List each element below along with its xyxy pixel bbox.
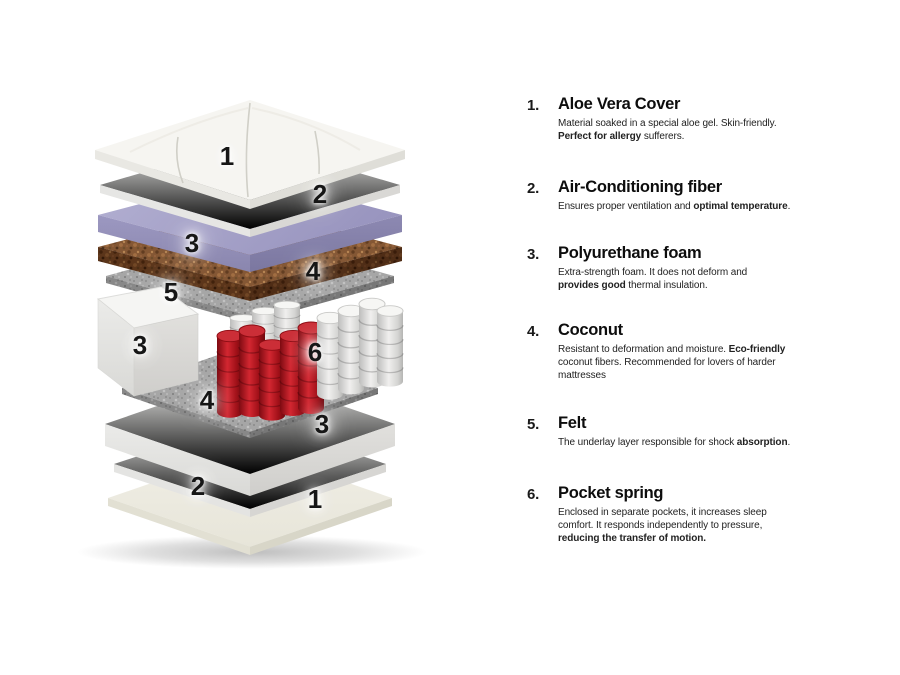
legend-item-title: Pocket spring xyxy=(558,484,767,502)
legend-item-title: Polyurethane foam xyxy=(558,244,747,262)
layer-label-2-top: 2 xyxy=(313,181,327,207)
legend-item-description: The underlay layer responsible for shock… xyxy=(558,436,790,449)
legend-item-air-conditioning-fiber: 2. Air-Conditioning fiber Ensures proper… xyxy=(512,178,790,213)
legend-item-number: 3. xyxy=(527,244,558,263)
layer-label-5: 5 xyxy=(164,279,178,305)
legend-item-title: Aloe Vera Cover xyxy=(558,95,777,113)
layer-label-2-bottom: 2 xyxy=(191,473,205,499)
foam-block xyxy=(98,287,198,396)
legend-item-number: 5. xyxy=(527,414,558,433)
layer-label-1-bottom: 1 xyxy=(308,486,322,512)
layer-label-6: 6 xyxy=(308,339,322,365)
mattress-layers-infographic: 1 2 3 4 5 3 6 4 3 2 1 1. Aloe Vera Cover… xyxy=(0,0,900,675)
legend-item-number: 1. xyxy=(527,95,558,114)
legend-item-title: Coconut xyxy=(558,321,785,339)
layer-label-1-top: 1 xyxy=(220,143,234,169)
legend-item-title: Felt xyxy=(558,414,790,432)
legend-item-coconut: 4. Coconut Resistant to deformation and … xyxy=(512,321,785,382)
legend-item-description: Extra-strength foam. It does not deform … xyxy=(558,266,747,292)
legend-item-description: Resistant to deformation and moisture. E… xyxy=(558,343,785,382)
legend-item-title: Air-Conditioning fiber xyxy=(558,178,790,196)
legend-item-description: Ensures proper ventilation and optimal t… xyxy=(558,200,790,213)
legend-item-pocket-spring: 6. Pocket spring Enclosed in separate po… xyxy=(512,484,767,545)
legend-item-description: Enclosed in separate pockets, it increas… xyxy=(558,506,767,545)
layer-label-3-block: 3 xyxy=(133,332,147,358)
legend-item-polyurethane-foam: 3. Polyurethane foam Extra-strength foam… xyxy=(512,244,747,292)
layer-label-3-top: 3 xyxy=(185,230,199,256)
layer-label-3-bottom: 3 xyxy=(315,411,329,437)
legend-item-felt: 5. Felt The underlay layer responsible f… xyxy=(512,414,790,449)
layer-label-4-bottom: 4 xyxy=(200,387,214,413)
legend-item-description: Material soaked in a special aloe gel. S… xyxy=(558,117,777,143)
legend-item-number: 4. xyxy=(527,321,558,340)
legend-item-number: 6. xyxy=(527,484,558,503)
legend-item-aloe-vera-cover: 1. Aloe Vera Cover Material soaked in a … xyxy=(512,95,777,143)
legend-item-number: 2. xyxy=(527,178,558,197)
layer-label-4-top: 4 xyxy=(306,258,320,284)
